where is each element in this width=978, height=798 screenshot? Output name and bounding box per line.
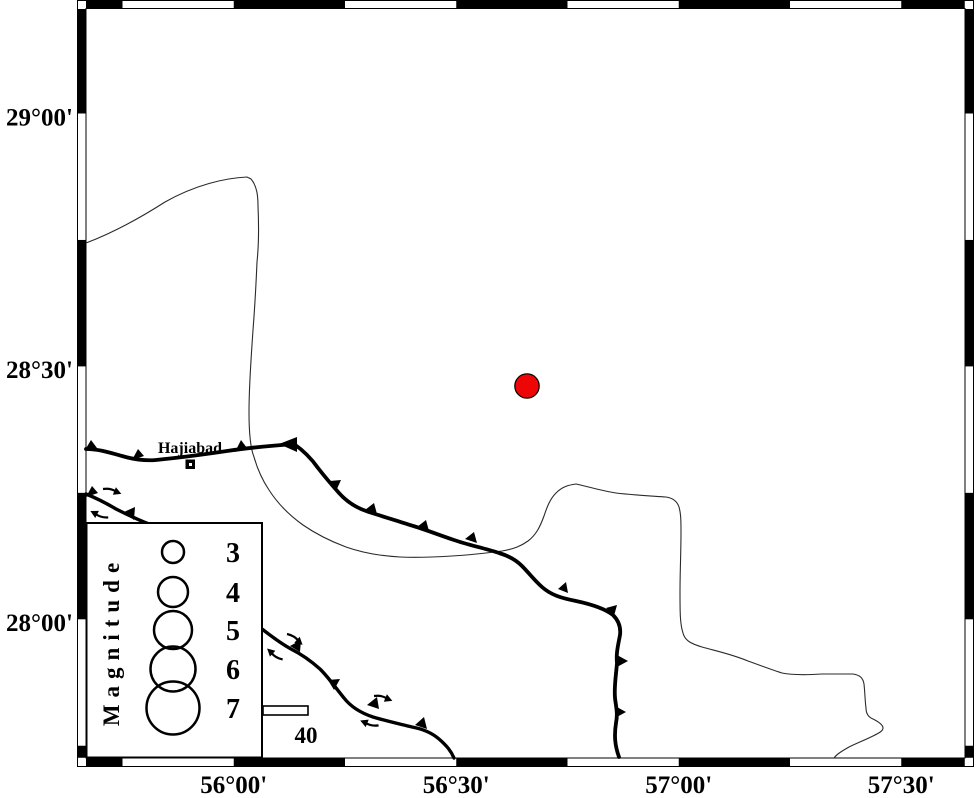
y-axis-label-28-00: 28°00': [6, 610, 73, 637]
x-axis-label-56-30: 56°30': [423, 772, 490, 798]
legend-value-6: 6: [226, 655, 240, 686]
frame-left-ticks: [78, 9, 86, 758]
magnitude-legend: Magnitude 3 4 5 6 7: [87, 523, 263, 758]
scale-bar-rect: [263, 706, 308, 715]
legend-value-5: 5: [226, 616, 240, 647]
x-axis-labels: 56°00' 56°30' 57°00' 57°30': [200, 772, 934, 798]
x-axis-label-57-30: 57°30': [868, 772, 935, 798]
y-axis-labels: 29°00' 28°30' 28°00': [6, 105, 73, 638]
map-canvas: Hajiabad Magnitude 3 4 5 6 7 40 29°00' 2…: [0, 0, 978, 798]
frame-bottom-ticks: [86, 759, 965, 767]
town-label: Hajiabad: [158, 440, 222, 457]
x-axis-label-56-00: 56°00': [200, 772, 267, 798]
frame-right-ticks: [966, 9, 974, 758]
scale-bar: 40: [263, 706, 318, 748]
scale-bar-label: 40: [295, 723, 318, 748]
town-hajiabad: Hajiabad: [158, 440, 222, 469]
x-axis-label-57-00: 57°00': [645, 772, 712, 798]
y-axis-label-28-30: 28°30': [6, 357, 73, 384]
legend-value-7: 7: [226, 694, 240, 725]
epicenter-marker: [515, 374, 539, 398]
legend-value-3: 3: [226, 538, 240, 569]
seismicity-map-figure: Hajiabad Magnitude 3 4 5 6 7 40 29°00' 2…: [0, 0, 978, 798]
y-axis-label-29-00: 29°00': [6, 105, 73, 132]
legend-title: Magnitude: [99, 556, 124, 726]
legend-values: 3 4 5 6 7: [226, 538, 240, 725]
town-square-inner: [189, 463, 192, 466]
frame-top-ticks: [86, 1, 965, 9]
legend-value-4: 4: [226, 578, 240, 609]
